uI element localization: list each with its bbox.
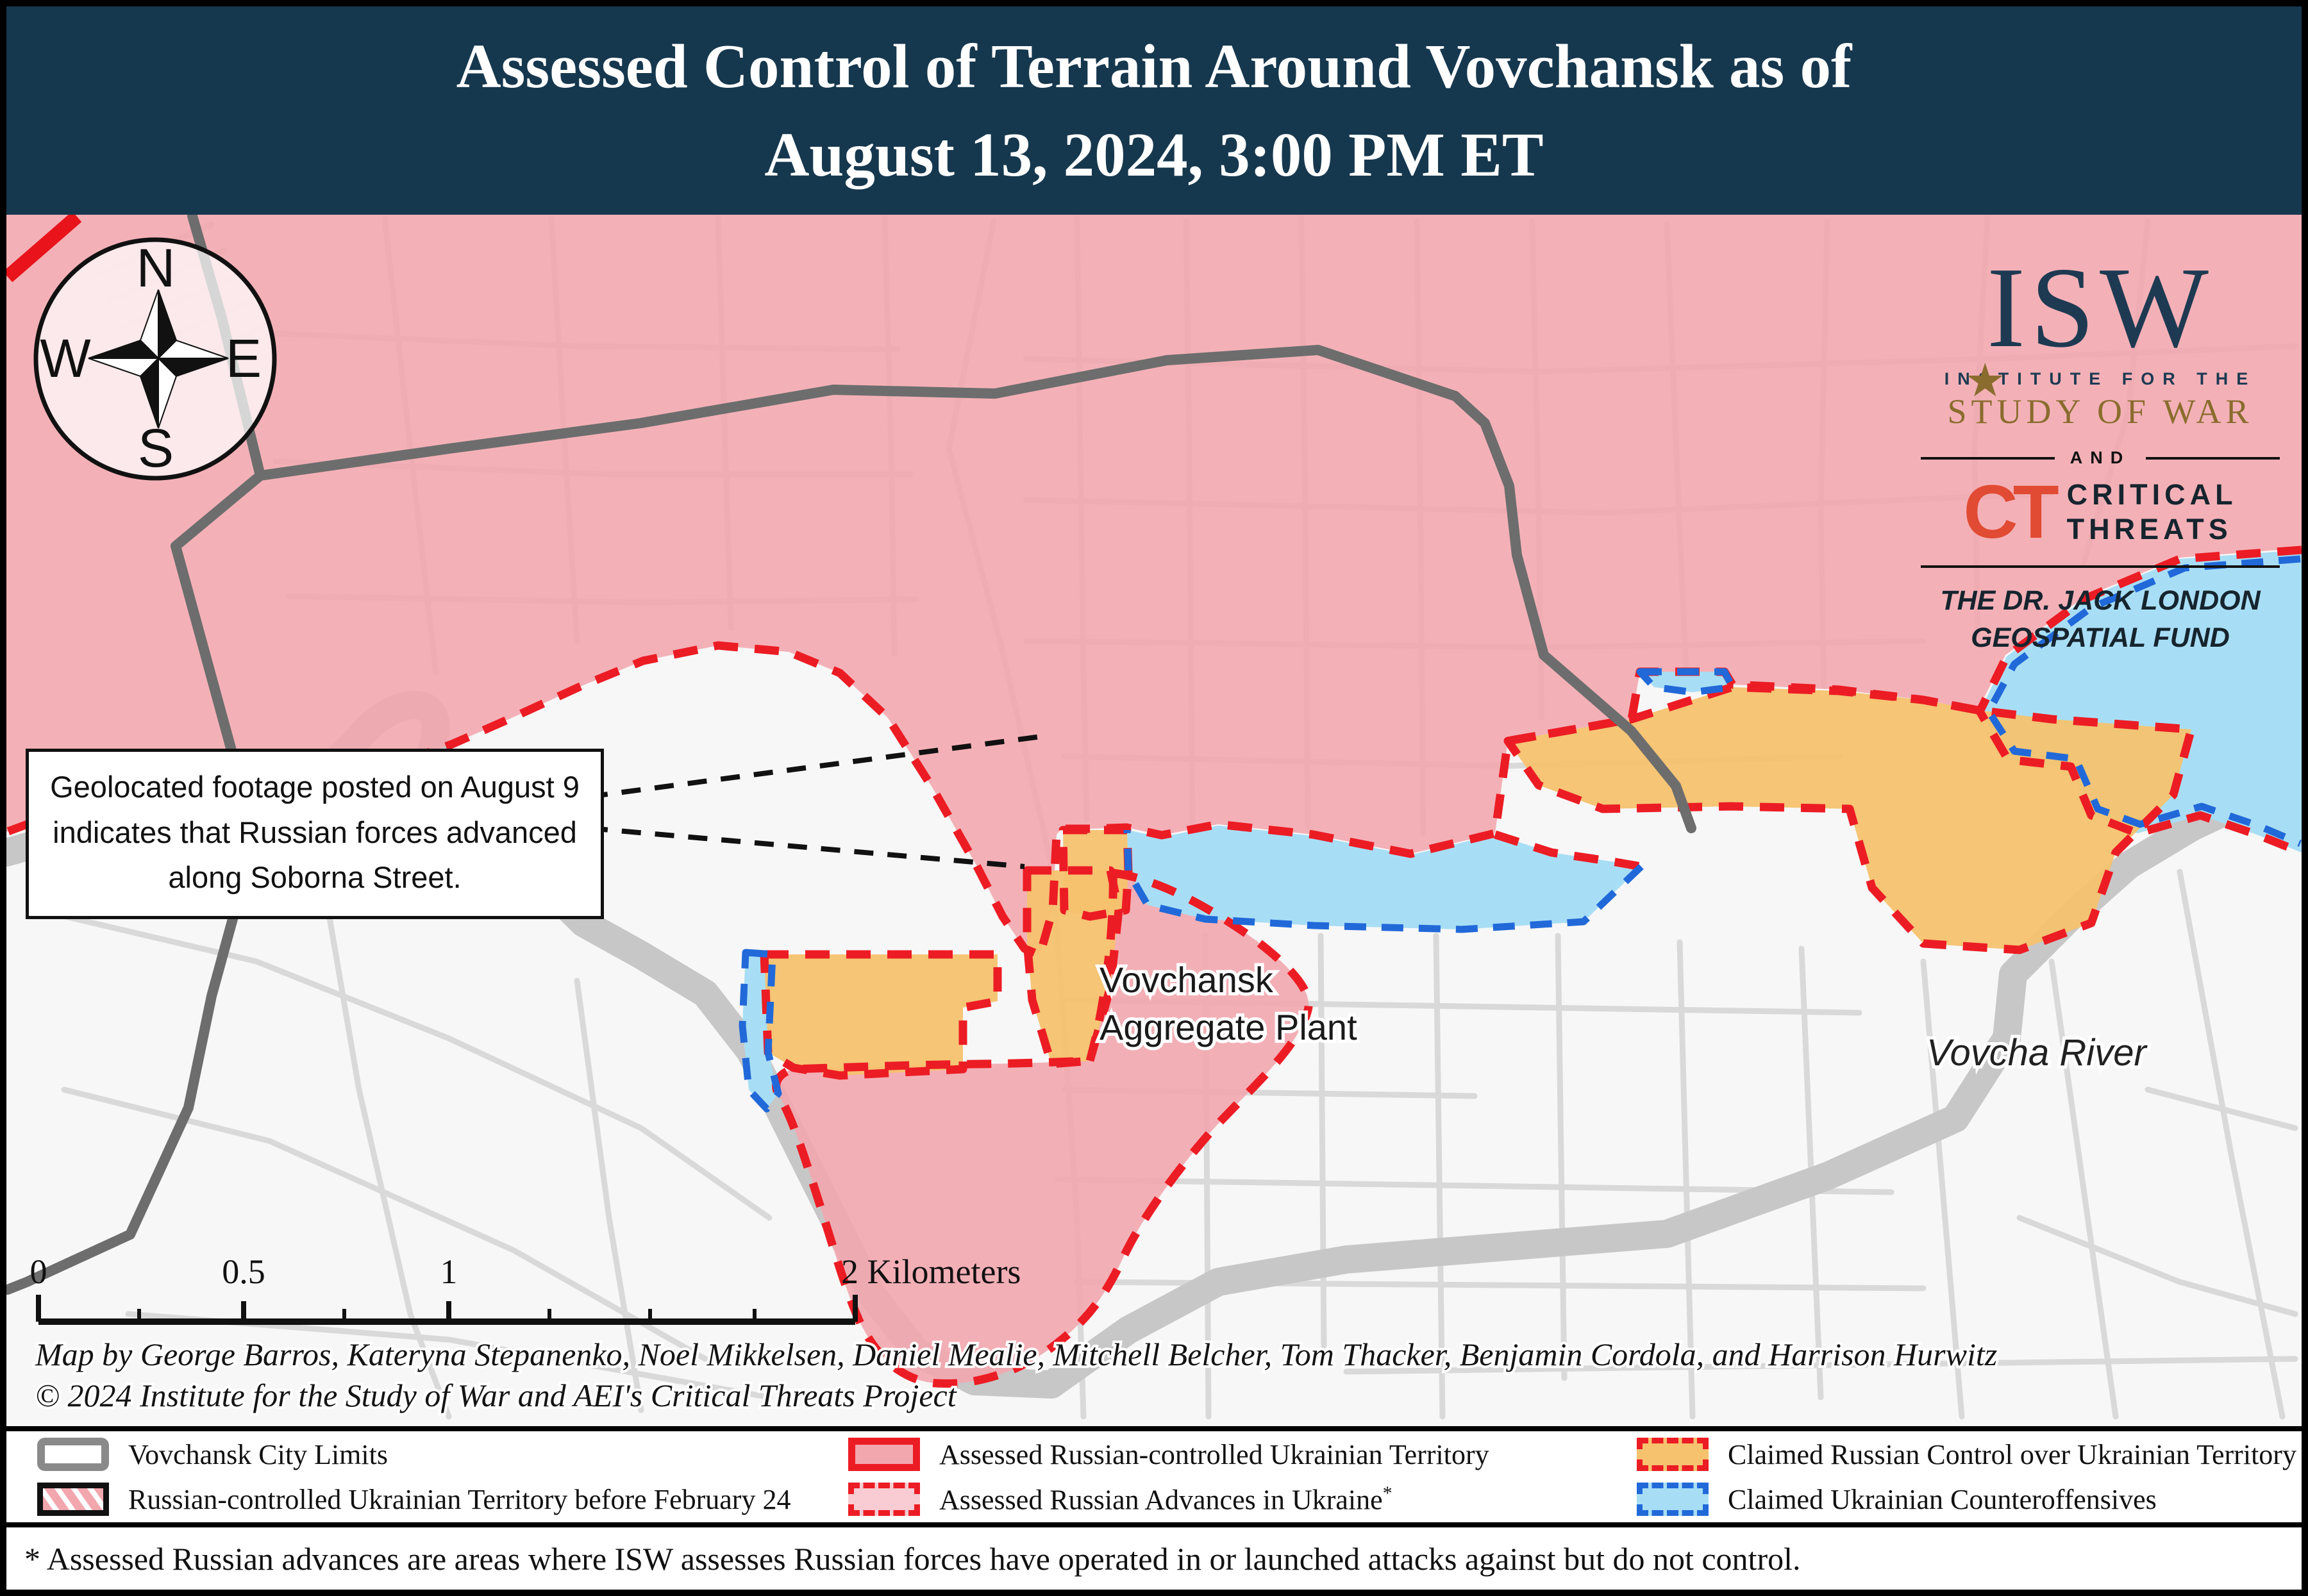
- legend-column-2: Assessed Russian-controlled Ukrainian Te…: [817, 1436, 1606, 1517]
- isw-logo: ISW ★ INSTITUTE FOR THE STUDY OF WAR AND…: [1921, 250, 2280, 656]
- scale-label-05: 0.5: [222, 1252, 265, 1291]
- geospatial-fund-text: THE DR. JACK LONDON GEOSPATIAL FUND: [1921, 582, 2280, 656]
- plant-label-line1: Vovchansk: [1100, 960, 1274, 1000]
- legend-column-1: Vovchansk City Limits Russian-controlled…: [6, 1436, 817, 1517]
- footnote-text: * Assessed Russian advances are areas wh…: [24, 1540, 1800, 1577]
- compass-rose: N E S W: [36, 238, 274, 478]
- legend-label: Assessed Russian Advances in Ukraine*: [939, 1483, 1392, 1517]
- legend-item-city-limits: Vovchansk City Limits: [37, 1436, 817, 1472]
- compass-w-label: W: [40, 328, 90, 388]
- legend-label: Vovchansk City Limits: [128, 1438, 388, 1471]
- critical-threats-logo: CT CRITICAL THREATS: [1921, 474, 2280, 550]
- legend-label: Russian-controlled Ukrainian Territory b…: [128, 1483, 790, 1516]
- legend-label: Assessed Russian-controlled Ukrainian Te…: [939, 1438, 1489, 1471]
- compass-n-label: N: [137, 238, 176, 298]
- title-bar: Assessed Control of Terrain Around Vovch…: [6, 6, 2302, 215]
- legend-label: Claimed Russian Control over Ukrainian T…: [1728, 1438, 2296, 1471]
- legend-item-claimed-russian: Claimed Russian Control over Ukrainian T…: [1637, 1436, 2302, 1472]
- scale-label-1: 1: [440, 1252, 458, 1291]
- footnote-band: * Assessed Russian advances are areas wh…: [6, 1522, 2302, 1590]
- map-title-line1: Assessed Control of Terrain Around Vovch…: [456, 22, 1852, 111]
- and-rule-left: [1921, 457, 2055, 460]
- pre-feb24-swatch: [37, 1483, 109, 1516]
- credits-line1: Map by George Barros, Kateryna Stepanenk…: [35, 1336, 1997, 1372]
- legend: Vovchansk City Limits Russian-controlled…: [6, 1426, 2302, 1522]
- scale-label-0: 0: [30, 1252, 47, 1291]
- map-area: N E S W Vovchansk Aggregate Plant Vovcha…: [6, 215, 2302, 1426]
- advances-asterisk: *: [1383, 1483, 1392, 1504]
- river-label: Vovcha River: [1927, 1032, 2148, 1074]
- scale-label-2km: 2 Kilometers: [841, 1252, 1021, 1291]
- map-title-line2: August 13, 2024, 3:00 PM ET: [764, 111, 1543, 199]
- callout-line3: along Soborna Street.: [35, 855, 594, 901]
- isw-star-icon: ★: [1964, 358, 2011, 404]
- ct-monogram-icon: CT: [1963, 474, 2053, 550]
- legend-label: Claimed Ukrainian Counteroffensives: [1728, 1483, 2157, 1516]
- and-text: AND: [2070, 448, 2131, 468]
- claimed-russian-region-west-block: [764, 954, 998, 1076]
- city-limits-swatch: [37, 1438, 109, 1471]
- legend-item-assessed-advances: Assessed Russian Advances in Ukraine*: [848, 1481, 1606, 1517]
- legend-item-assessed-controlled: Assessed Russian-controlled Ukrainian Te…: [848, 1436, 1606, 1472]
- logo-divider: [1921, 565, 2280, 568]
- plant-label-line2: Aggregate Plant: [1100, 1007, 1357, 1047]
- claimed-ua-swatch: [1637, 1483, 1709, 1516]
- assessed-advances-swatch: [848, 1483, 920, 1516]
- callout-box: Geolocated footage posted on August 9 in…: [26, 749, 604, 919]
- legend-item-claimed-ua: Claimed Ukrainian Counteroffensives: [1637, 1481, 2302, 1517]
- assessed-controlled-swatch: [848, 1438, 920, 1471]
- isw-vovchansk-map-page: Assessed Control of Terrain Around Vovch…: [0, 0, 2308, 1596]
- and-rule-right: [2146, 457, 2280, 460]
- compass-s-label: S: [138, 418, 174, 478]
- callout-line1: Geolocated footage posted on August 9: [35, 765, 594, 810]
- claimed-russian-swatch: [1637, 1438, 1709, 1471]
- credits-line2: © 2024 Institute for the Study of War an…: [35, 1377, 957, 1413]
- legend-column-3: Claimed Russian Control over Ukrainian T…: [1606, 1436, 2302, 1517]
- compass-e-label: E: [226, 328, 262, 388]
- critical-threats-text: CRITICAL THREATS: [2067, 478, 2237, 547]
- and-separator: AND: [1921, 448, 2280, 468]
- callout-line2: indicates that Russian forces advanced: [35, 810, 594, 856]
- legend-item-pre-feb24: Russian-controlled Ukrainian Territory b…: [37, 1481, 817, 1517]
- isw-wordmark: ISW ★: [1921, 250, 2280, 365]
